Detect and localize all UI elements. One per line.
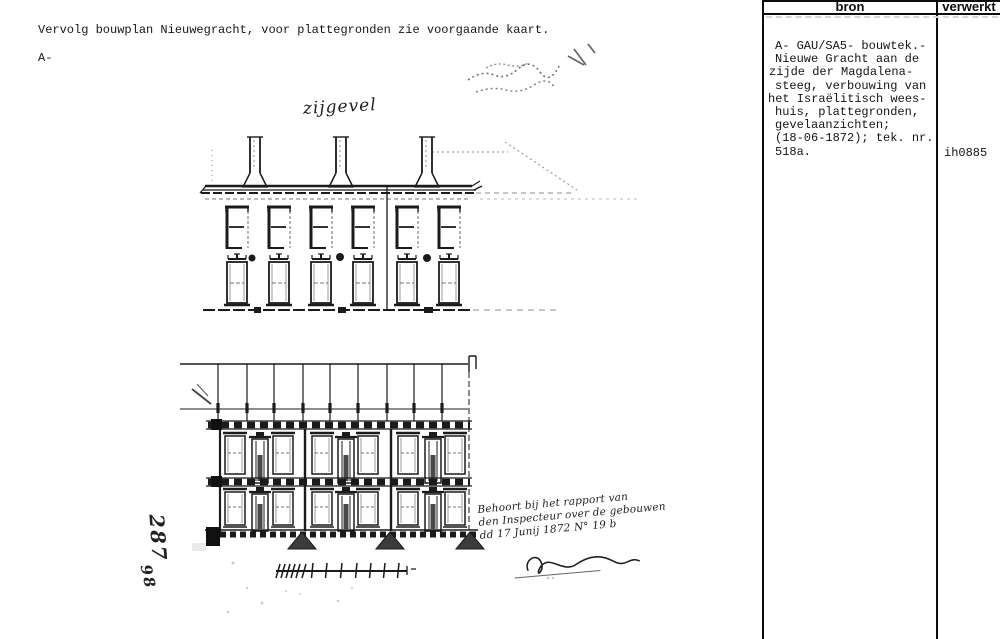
- archive-card-page: Vervolg bouwplan Nieuwegracht, voor plat…: [0, 0, 1000, 639]
- window: [309, 207, 333, 249]
- signature-flourish: [513, 549, 640, 578]
- item-marker: A-: [38, 52, 52, 65]
- bron-text-line: 518a.: [775, 146, 940, 159]
- door-pier: [335, 487, 357, 531]
- door-pier: [249, 487, 271, 531]
- scale-bar: [276, 563, 416, 578]
- window: [224, 254, 250, 305]
- window: [437, 207, 461, 249]
- door-pier: [249, 432, 271, 483]
- verwerkt-value: ih0885: [944, 146, 987, 160]
- window: [394, 254, 420, 305]
- bron-text-line: steeg, verbouwing van: [775, 80, 940, 93]
- bouwplan-drawing: zijgevel: [130, 35, 710, 625]
- window: [267, 207, 291, 249]
- facade-elevation: [200, 137, 640, 313]
- column-header-bron: bron: [764, 0, 936, 13]
- facade-label: zijgevel: [302, 95, 378, 119]
- bron-text-line: (18-06-1872); tek. nr.: [775, 132, 940, 145]
- scan-noise: [192, 543, 554, 613]
- door-pier: [422, 432, 444, 483]
- section-drawing: [180, 356, 484, 549]
- window: [308, 254, 334, 305]
- scan-smear: [766, 16, 998, 18]
- window: [395, 207, 419, 249]
- window: [436, 254, 462, 305]
- chimney: [242, 137, 268, 187]
- door-pier: [422, 487, 444, 531]
- column-header-verwerkt: verwerkt: [938, 0, 1000, 13]
- chimney: [414, 137, 440, 187]
- bron-text-line: zijde der Magdalena-: [769, 66, 940, 79]
- window: [350, 254, 376, 305]
- handwritten-scribble: [468, 44, 595, 92]
- window: [351, 207, 375, 249]
- table-border-left: [762, 0, 764, 639]
- chimney: [328, 137, 354, 187]
- door-pier: [335, 432, 357, 483]
- bron-description: A- GAU/SA5- bouwtek.- Nieuwe Gracht aan …: [775, 40, 940, 159]
- window: [266, 254, 292, 305]
- window: [225, 207, 249, 249]
